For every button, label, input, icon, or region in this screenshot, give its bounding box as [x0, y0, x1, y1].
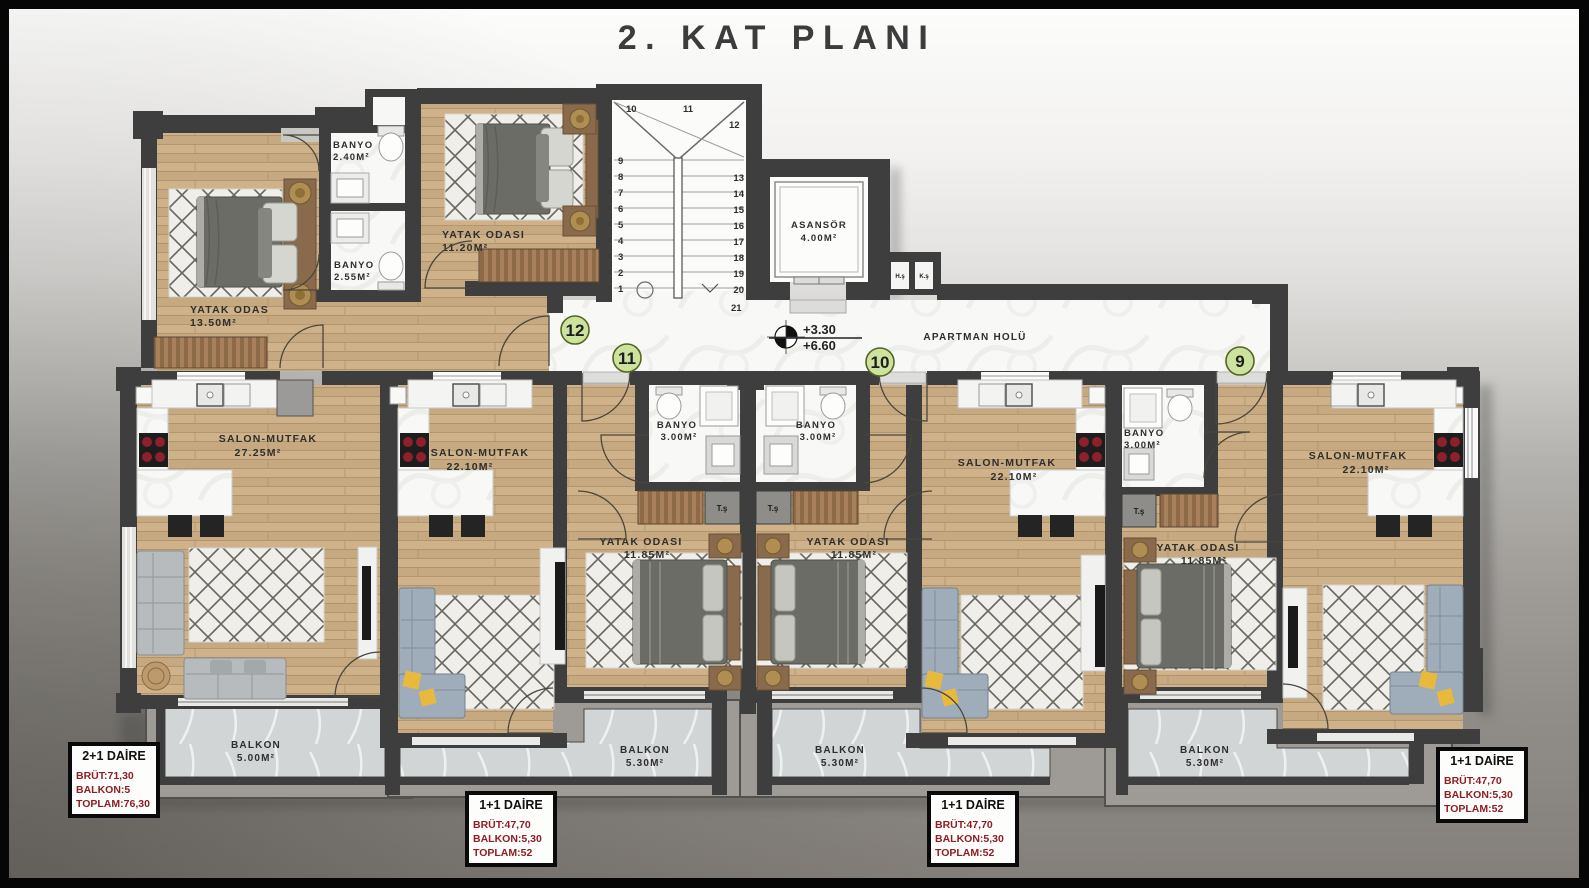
svg-text:20: 20 [733, 285, 744, 296]
svg-text:YATAK ODASI: YATAK ODASI [599, 536, 682, 548]
svg-text:12: 12 [566, 321, 585, 340]
svg-text:3.00M²: 3.00M² [661, 432, 698, 443]
svg-text:BALKON: BALKON [231, 740, 281, 751]
svg-text:BRÜT:47,70: BRÜT:47,70 [473, 818, 531, 831]
svg-text:11.85M²: 11.85M² [624, 549, 670, 561]
svg-text:11.20M²: 11.20M² [442, 242, 488, 254]
svg-text:YATAK ODASI: YATAK ODASI [442, 229, 525, 241]
svg-text:11: 11 [618, 349, 636, 368]
svg-text:T.ş: T.ş [768, 504, 779, 513]
svg-text:2.55M²: 2.55M² [334, 272, 371, 283]
svg-text:BANYO: BANYO [796, 420, 836, 431]
svg-text:14: 14 [733, 189, 744, 200]
svg-text:13.50M²: 13.50M² [190, 317, 237, 329]
svg-text:BALKON: BALKON [1180, 745, 1230, 756]
svg-text:SALON-MUTFAK: SALON-MUTFAK [219, 433, 317, 445]
svg-text:4: 4 [618, 236, 624, 247]
svg-text:SALON-MUTFAK: SALON-MUTFAK [958, 457, 1056, 469]
svg-text:5.30M²: 5.30M² [626, 758, 664, 769]
svg-text:BALKON:5,30: BALKON:5,30 [473, 833, 542, 845]
svg-text:1+1 DAİRE: 1+1 DAİRE [941, 797, 1005, 812]
svg-text:BANYO: BANYO [1124, 428, 1164, 439]
svg-text:1: 1 [618, 284, 624, 295]
svg-text:BANYO: BANYO [333, 140, 373, 151]
svg-text:BALKON:5: BALKON:5 [76, 784, 130, 796]
svg-text:3: 3 [618, 252, 623, 263]
svg-text:19: 19 [733, 269, 744, 280]
svg-text:3.00M²: 3.00M² [800, 432, 837, 443]
svg-text:5.30M²: 5.30M² [1186, 758, 1224, 769]
svg-text:21: 21 [731, 303, 742, 314]
svg-text:3.00M²: 3.00M² [1124, 440, 1161, 451]
svg-text:11.85M²: 11.85M² [1181, 555, 1227, 567]
svg-text:+6.60: +6.60 [803, 338, 836, 353]
svg-text:YATAK ODASI: YATAK ODASI [1156, 542, 1239, 554]
svg-text:27.25M²: 27.25M² [235, 447, 282, 459]
svg-text:BANYO: BANYO [657, 420, 697, 431]
svg-text:2+1 DAİRE: 2+1 DAİRE [82, 748, 146, 763]
svg-text:22.10M²: 22.10M² [991, 471, 1038, 483]
svg-text:22.10M²: 22.10M² [447, 461, 494, 473]
svg-text:5: 5 [618, 220, 624, 231]
svg-text:BRÜT:47,70: BRÜT:47,70 [935, 818, 993, 831]
svg-text:2. KAT PLANI: 2. KAT PLANI [618, 19, 937, 57]
svg-text:+3.30: +3.30 [803, 322, 836, 337]
svg-text:BRÜT:71,30: BRÜT:71,30 [76, 769, 134, 782]
svg-text:APARTMAN HOLÜ: APARTMAN HOLÜ [923, 330, 1026, 343]
svg-text:T.ş: T.ş [717, 504, 728, 513]
svg-text:BALKON:5,30: BALKON:5,30 [935, 833, 1004, 845]
svg-text:15: 15 [733, 205, 744, 216]
svg-text:18: 18 [733, 253, 744, 264]
svg-text:8: 8 [618, 172, 623, 183]
svg-text:ASANSÖR: ASANSÖR [791, 220, 847, 231]
svg-text:22.10M²: 22.10M² [1343, 464, 1390, 476]
svg-text:TOPLAM:76,30: TOPLAM:76,30 [76, 798, 150, 810]
svg-text:13: 13 [733, 173, 744, 184]
svg-text:H.ş: H.ş [895, 274, 905, 280]
svg-text:4.00M²: 4.00M² [801, 233, 838, 244]
svg-text:BANYO: BANYO [334, 260, 374, 271]
svg-text:16: 16 [733, 221, 744, 232]
svg-text:T.ş: T.ş [1134, 507, 1145, 516]
svg-text:YATAK ODAS: YATAK ODAS [190, 304, 269, 316]
svg-text:1+1 DAİRE: 1+1 DAİRE [479, 797, 543, 812]
svg-text:9: 9 [618, 156, 623, 167]
svg-text:10: 10 [626, 104, 637, 115]
svg-text:11.85M²: 11.85M² [831, 549, 877, 561]
svg-text:17: 17 [733, 237, 744, 248]
svg-text:7: 7 [618, 188, 623, 199]
svg-text:BALKON: BALKON [620, 745, 670, 756]
svg-text:11: 11 [683, 104, 694, 115]
svg-text:SALON-MUTFAK: SALON-MUTFAK [431, 447, 529, 459]
svg-text:5.30M²: 5.30M² [821, 758, 859, 769]
svg-text:TOPLAM:52: TOPLAM:52 [935, 847, 994, 859]
svg-text:2: 2 [618, 268, 623, 279]
svg-text:10: 10 [871, 353, 890, 372]
svg-text:5.00M²: 5.00M² [237, 753, 275, 764]
svg-text:TOPLAM:52: TOPLAM:52 [1444, 803, 1503, 815]
svg-text:YATAK ODASI: YATAK ODASI [806, 536, 889, 548]
svg-text:2.40M²: 2.40M² [333, 152, 370, 163]
svg-text:BALKON: BALKON [815, 745, 865, 756]
svg-text:1+1 DAİRE: 1+1 DAİRE [1450, 753, 1514, 768]
svg-text:6: 6 [618, 204, 623, 215]
svg-text:TOPLAM:52: TOPLAM:52 [473, 847, 532, 859]
svg-text:K.ş: K.ş [919, 274, 929, 280]
svg-text:BALKON:5,30: BALKON:5,30 [1444, 789, 1513, 801]
svg-text:12: 12 [729, 120, 740, 131]
svg-text:9: 9 [1235, 352, 1244, 371]
svg-text:BRÜT:47,70: BRÜT:47,70 [1444, 774, 1502, 787]
svg-text:SALON-MUTFAK: SALON-MUTFAK [1309, 450, 1407, 462]
